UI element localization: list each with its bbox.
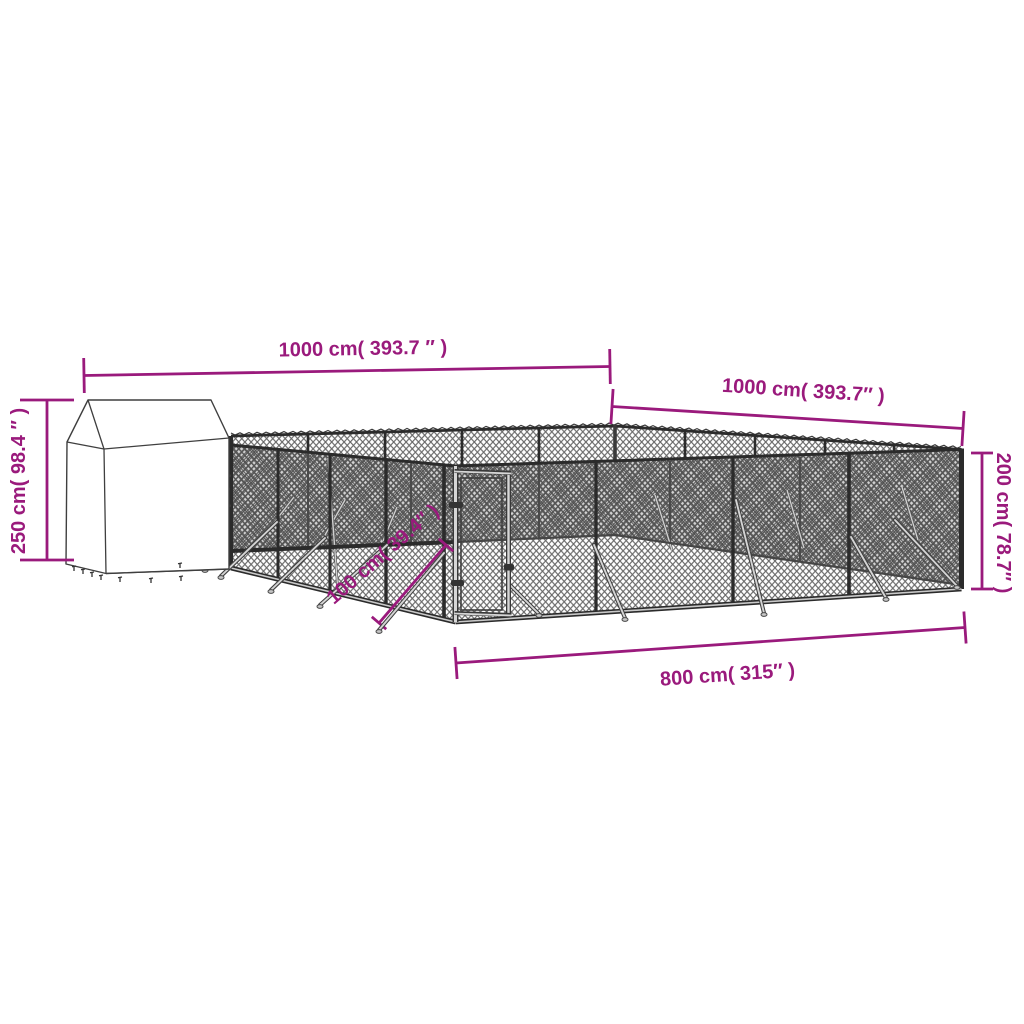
svg-text:1000 cm( 393.7 ″ ): 1000 cm( 393.7 ″ ): [278, 337, 447, 362]
svg-text:250 cm( 98.4 ″ ): 250 cm( 98.4 ″ ): [8, 408, 30, 554]
svg-text:200 cm( 78.7″ ): 200 cm( 78.7″ ): [992, 453, 1014, 594]
